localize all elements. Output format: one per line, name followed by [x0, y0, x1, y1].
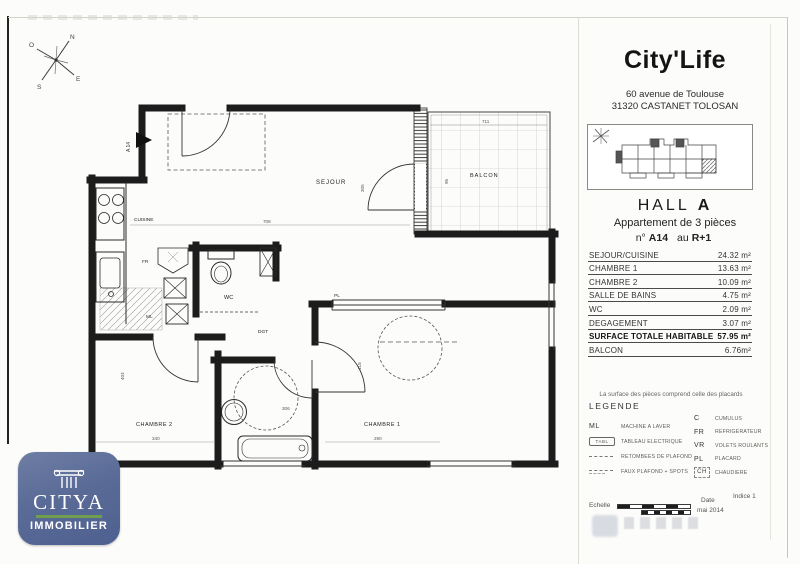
scale-bar-2 — [641, 510, 691, 515]
compass-center — [54, 58, 57, 61]
legend-item: ML MACHINE A LAVER — [589, 419, 693, 434]
ch1-turning-circle — [378, 316, 442, 380]
date-label: Date — [701, 497, 715, 504]
dim-balcon-d: 95 — [444, 178, 449, 184]
doors — [153, 108, 414, 398]
bathtub-drain — [299, 445, 305, 451]
agency-name: CITYA — [33, 492, 105, 513]
scanned-floor-plan-page: N E S O — [0, 0, 800, 564]
floor-level: R+1 — [692, 232, 712, 244]
table-row: SALLE DE BAINS4.75 m² — [588, 289, 752, 303]
label-fr: FR — [142, 259, 149, 265]
table-row: WC2.09 m² — [588, 302, 752, 316]
key-plan-highlighted-unit — [702, 159, 716, 173]
apartment-number-line: n°A14auR+1 — [585, 232, 765, 244]
legend-label: REFRIGERATEUR — [715, 429, 762, 435]
legend-label: VOLETS ROULANTS — [715, 443, 768, 449]
shutter-symbol: VR — [694, 442, 710, 449]
legend-item: TABL TABLEAU ELECTRIQUE — [589, 434, 693, 449]
key-plan-box — [587, 124, 753, 190]
entrance-unit-label: A 14 — [126, 142, 132, 152]
legend-item: C CUMULUS — [694, 412, 794, 426]
balcony-door — [368, 164, 414, 210]
areas-table: SEJOUR/CUISINE24.32 m² CHAMBRE 113.63 m²… — [588, 248, 752, 357]
brand-title: City'Life — [585, 46, 765, 75]
sdb-door — [274, 360, 312, 398]
closet-symbol: PL — [694, 456, 710, 463]
table-row: DEGAGEMENT3.07 m² — [588, 316, 752, 330]
entry-hatch — [100, 288, 162, 330]
ml-symbol: ML — [589, 423, 616, 430]
electrical-panel-symbol: TABL — [589, 437, 615, 446]
key-plan — [588, 125, 750, 187]
legend-title: LEGENDE — [589, 401, 640, 411]
ceiling-drop-symbol — [589, 454, 616, 459]
row-label: SURFACE TOTALE HABITABLE — [589, 332, 713, 341]
sink-bowl — [100, 258, 120, 288]
floor-plan: A 14 SEJOUR CUISINE BALCON WC DGT CHAMBR… — [80, 92, 582, 484]
legend-right-column: C CUMULUS FR REFRIGERATEUR VR VOLETS ROU… — [694, 412, 794, 480]
table-row: CHAMBRE 210.09 m² — [588, 275, 752, 289]
boiler-symbol: CH — [694, 467, 710, 478]
table-row: BALCON6.76m² — [588, 343, 752, 357]
windows — [220, 280, 554, 466]
dim-ch2-h: 404 — [120, 372, 125, 380]
row-value: 4.75 m² — [722, 291, 751, 300]
revision-label: Indice 1 — [733, 493, 756, 500]
faded-stamp-text — [624, 517, 702, 529]
apartment-description: Appartement de 3 pièces — [585, 217, 765, 229]
label-cuisine: CUISINE — [134, 217, 153, 223]
surface-note: La surface des pièces comprend celle des… — [589, 391, 753, 398]
legend-label: CHAUDIERE — [715, 470, 747, 476]
key-plan-compass — [593, 128, 609, 144]
compass-north-label: N — [70, 34, 75, 41]
column-capital-icon — [50, 466, 88, 490]
chambre2-door — [153, 337, 198, 382]
dim-ch2-w: 340 — [152, 436, 160, 441]
connector: au — [677, 232, 689, 244]
dim-ch1-w: 290 — [374, 436, 382, 441]
bathtub — [238, 436, 312, 461]
compass-west-label: O — [29, 42, 34, 49]
legend-left-column: ML MACHINE A LAVER TABL TABLEAU ELECTRIQ… — [589, 419, 693, 479]
compass-south-label: S — [37, 84, 42, 91]
fridge-symbol: FR — [694, 429, 710, 436]
legend-item: FAUX PLAFOND + SPOTS — [589, 464, 693, 479]
false-ceiling-symbol — [589, 468, 616, 476]
scan-smudge — [28, 15, 198, 20]
compass-east-label: E — [76, 76, 81, 83]
logo-divider — [36, 515, 102, 518]
agency-subtitle: IMMOBILIER — [30, 520, 108, 532]
number-prefix: n° — [636, 232, 646, 244]
fridge — [158, 248, 188, 273]
legend-item: RETOMBEES DE PLAFOND — [589, 449, 693, 464]
date-value: mai 2014 — [697, 507, 724, 514]
label-balcon: BALCON — [470, 173, 499, 179]
legend-label: TABLEAU ELECTRIQUE — [621, 439, 682, 445]
label-ml: ML — [146, 314, 153, 320]
row-label: WC — [589, 305, 603, 314]
row-value: 10.09 m² — [718, 278, 751, 287]
agency-logo-badge: CITYA IMMOBILIER — [18, 452, 120, 545]
row-value: 6.76m² — [725, 346, 751, 355]
dim-sejour-h: 305 — [360, 184, 365, 192]
row-value: 24.32 m² — [718, 251, 751, 260]
hall-value: A — [698, 197, 713, 214]
label-chambre2: CHAMBRE 2 — [136, 422, 173, 428]
row-label: CHAMBRE 2 — [589, 278, 637, 287]
toilet-bowl — [211, 262, 231, 284]
entrance-door — [182, 108, 230, 156]
row-label: CHAMBRE 1 — [589, 264, 637, 273]
dim-balcon-w: 711 — [482, 119, 490, 124]
row-label: BALCON — [589, 346, 623, 355]
row-label: SEJOUR/CUISINE — [589, 251, 659, 260]
legend-item: VR VOLETS ROULANTS — [694, 439, 794, 453]
faded-stamp-icon — [592, 515, 618, 537]
legend-item: FR REFRIGERATEUR — [694, 426, 794, 440]
scan-left-edge — [7, 16, 9, 444]
legend-label: RETOMBEES DE PLAFOND — [621, 454, 692, 460]
legend-label: PLACARD — [715, 456, 741, 462]
hall-title: HALLA — [585, 197, 765, 215]
row-value: 13.63 m² — [718, 264, 751, 273]
scale-bar — [617, 504, 691, 509]
legend-label: FAUX PLAFOND + SPOTS — [621, 469, 688, 475]
apartment-number: A14 — [649, 232, 668, 244]
dim-sdb-w: 306 — [282, 406, 290, 411]
dim-sejour-w: 708 — [263, 219, 271, 224]
scale-label: Echelle — [589, 502, 610, 509]
key-plan-building — [616, 139, 716, 178]
legend-item: PL PLACARD — [694, 453, 794, 467]
row-value: 3.07 m² — [722, 319, 751, 328]
hall-label: HALL — [638, 197, 690, 214]
legend-item: CH CHAUDIERE — [694, 466, 794, 480]
label-chambre1: CHAMBRE 1 — [364, 422, 401, 428]
glazed-bay — [414, 108, 427, 234]
dim-ch1-h: 418 — [357, 362, 362, 370]
address-line-1: 60 avenue de Toulouse — [585, 89, 765, 100]
table-row: SEJOUR/CUISINE24.32 m² — [588, 248, 752, 262]
table-row-total: SURFACE TOTALE HABITABLE57.95 m² — [588, 330, 752, 344]
row-label: DEGAGEMENT — [589, 319, 648, 328]
row-value: 2.09 m² — [722, 305, 751, 314]
table-row: CHAMBRE 113.63 m² — [588, 262, 752, 276]
cumulus-symbol: C — [694, 415, 710, 422]
label-sejour: SEJOUR — [316, 180, 346, 186]
legend-label: MACHINE A LAVER — [621, 424, 670, 430]
placard-strip — [332, 300, 445, 310]
label-wc: WC — [224, 295, 233, 301]
legend-label: CUMULUS — [715, 416, 742, 422]
label-pl: PL — [334, 293, 340, 299]
row-value: 57.95 m² — [717, 332, 751, 341]
row-label: SALLE DE BAINS — [589, 291, 656, 300]
label-dgt: DGT — [258, 329, 268, 335]
address-line-2: 31320 CASTANET TOLOSAN — [585, 101, 765, 112]
